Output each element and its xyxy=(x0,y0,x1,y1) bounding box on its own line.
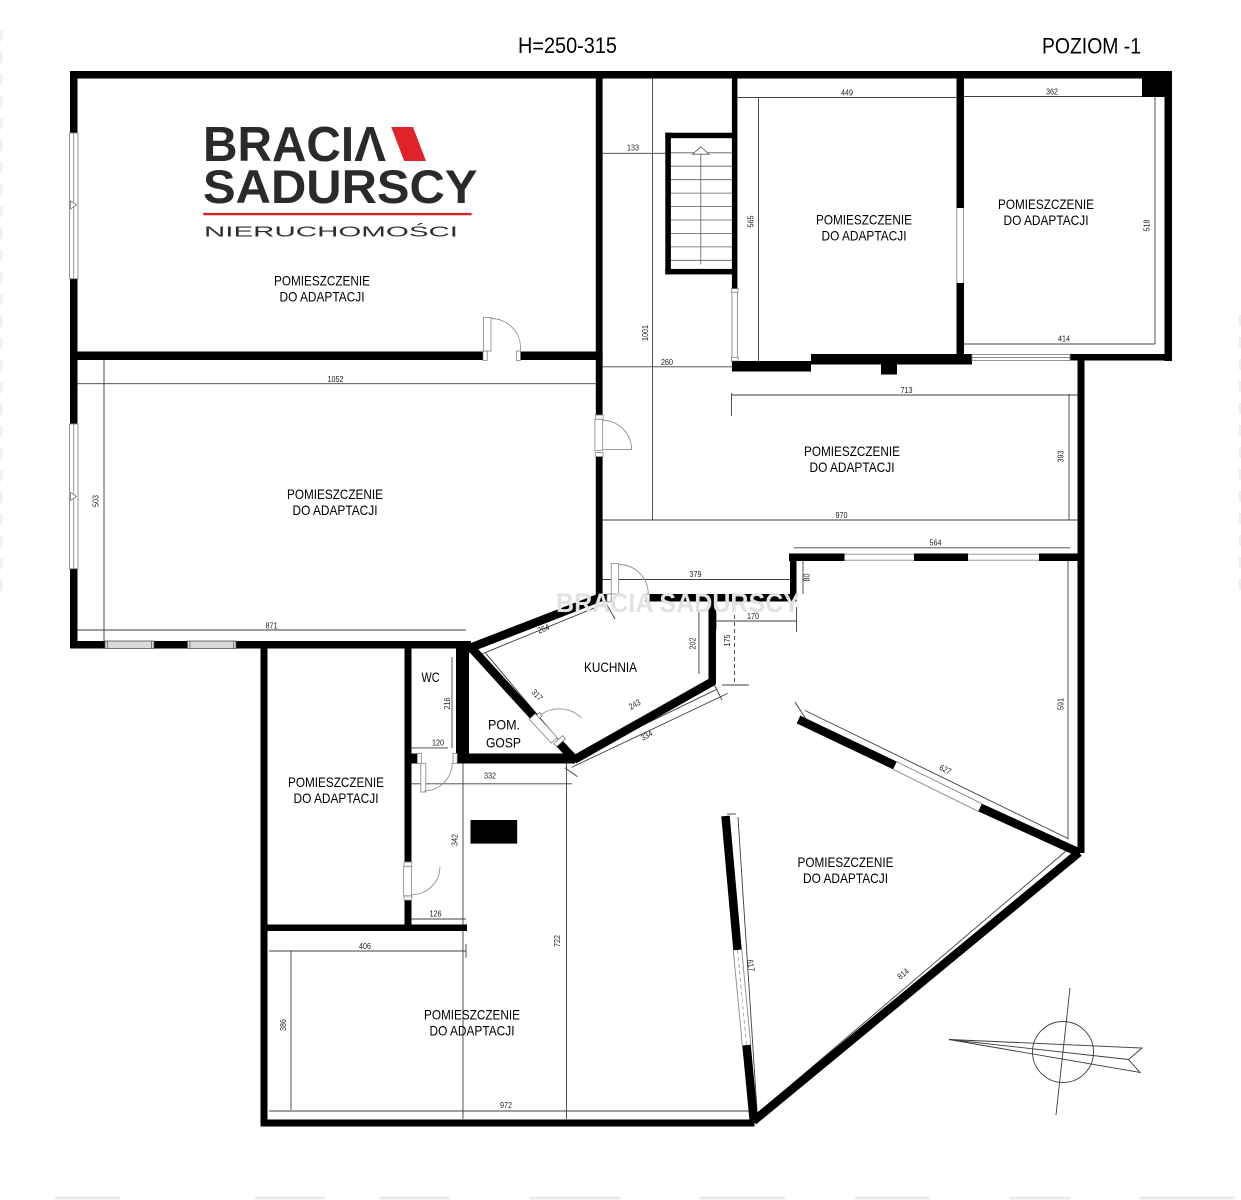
svg-text:BRACIA SADURSCY: BRACIA SADURSCY xyxy=(556,588,800,618)
svg-text:POMIESZCZENIE: POMIESZCZENIE xyxy=(998,196,1094,212)
svg-text:DO ADAPTACJI: DO ADAPTACJI xyxy=(803,870,888,886)
svg-text:175: 175 xyxy=(722,634,732,646)
svg-text:386: 386 xyxy=(278,1019,288,1031)
svg-text:DO ADAPTACJI: DO ADAPTACJI xyxy=(280,289,365,305)
svg-text:713: 713 xyxy=(901,385,913,395)
svg-text:722: 722 xyxy=(552,935,562,947)
svg-text:591: 591 xyxy=(1056,698,1066,710)
svg-text:379: 379 xyxy=(690,569,702,579)
svg-text:DO ADAPTACJI: DO ADAPTACJI xyxy=(810,459,895,475)
svg-text:617: 617 xyxy=(745,959,757,973)
svg-text:260: 260 xyxy=(661,357,673,367)
svg-text:KUCHNIA: KUCHNIA xyxy=(584,659,638,675)
svg-text:972: 972 xyxy=(500,1100,512,1110)
svg-text:1001: 1001 xyxy=(640,325,650,341)
svg-text:449: 449 xyxy=(841,88,853,98)
svg-text:POZIOM -1: POZIOM -1 xyxy=(1042,34,1141,59)
svg-text:518: 518 xyxy=(1142,219,1152,231)
svg-text:POMIESZCZENIE: POMIESZCZENIE xyxy=(288,774,384,790)
svg-text:SADURSCY: SADURSCY xyxy=(203,160,478,213)
svg-text:DO ADAPTACJI: DO ADAPTACJI xyxy=(294,790,379,806)
svg-text:342: 342 xyxy=(450,834,460,846)
svg-text:970: 970 xyxy=(836,510,848,520)
svg-text:406: 406 xyxy=(359,941,371,951)
svg-text:DO ADAPTACJI: DO ADAPTACJI xyxy=(293,502,378,518)
svg-text:POM.: POM. xyxy=(488,717,520,733)
svg-text:DO ADAPTACJI: DO ADAPTACJI xyxy=(822,228,907,244)
svg-text:202: 202 xyxy=(688,637,698,649)
svg-text:NIERUCHOMOŚCI: NIERUCHOMOŚCI xyxy=(204,223,458,241)
svg-text:362: 362 xyxy=(1046,87,1058,97)
svg-text:POMIESZCZENIE: POMIESZCZENIE xyxy=(274,273,370,289)
svg-text:216: 216 xyxy=(442,697,452,709)
svg-text:DO ADAPTACJI: DO ADAPTACJI xyxy=(1004,212,1089,228)
svg-text:126: 126 xyxy=(430,909,442,919)
svg-text:393: 393 xyxy=(1056,450,1066,462)
svg-text:POMIESZCZENIE: POMIESZCZENIE xyxy=(798,854,894,870)
svg-text:80: 80 xyxy=(802,573,812,581)
svg-text:H=250-315: H=250-315 xyxy=(518,33,617,58)
svg-text:565: 565 xyxy=(746,215,756,227)
svg-text:POMIESZCZENIE: POMIESZCZENIE xyxy=(287,486,383,502)
svg-text:POMIESZCZENIE: POMIESZCZENIE xyxy=(424,1007,520,1023)
svg-text:POMIESZCZENIE: POMIESZCZENIE xyxy=(816,212,912,228)
svg-text:WC: WC xyxy=(422,669,440,685)
svg-text:1052: 1052 xyxy=(328,374,344,384)
svg-text:GOSP: GOSP xyxy=(486,735,521,751)
svg-text:DO ADAPTACJI: DO ADAPTACJI xyxy=(430,1023,515,1039)
svg-text:POMIESZCZENIE: POMIESZCZENIE xyxy=(804,443,900,459)
svg-text:133: 133 xyxy=(627,143,639,153)
svg-text:871: 871 xyxy=(266,621,278,631)
svg-text:332: 332 xyxy=(484,771,496,781)
svg-text:503: 503 xyxy=(91,495,101,507)
svg-text:414: 414 xyxy=(1058,334,1070,344)
svg-text:564: 564 xyxy=(930,538,942,548)
svg-text:120: 120 xyxy=(432,738,444,748)
